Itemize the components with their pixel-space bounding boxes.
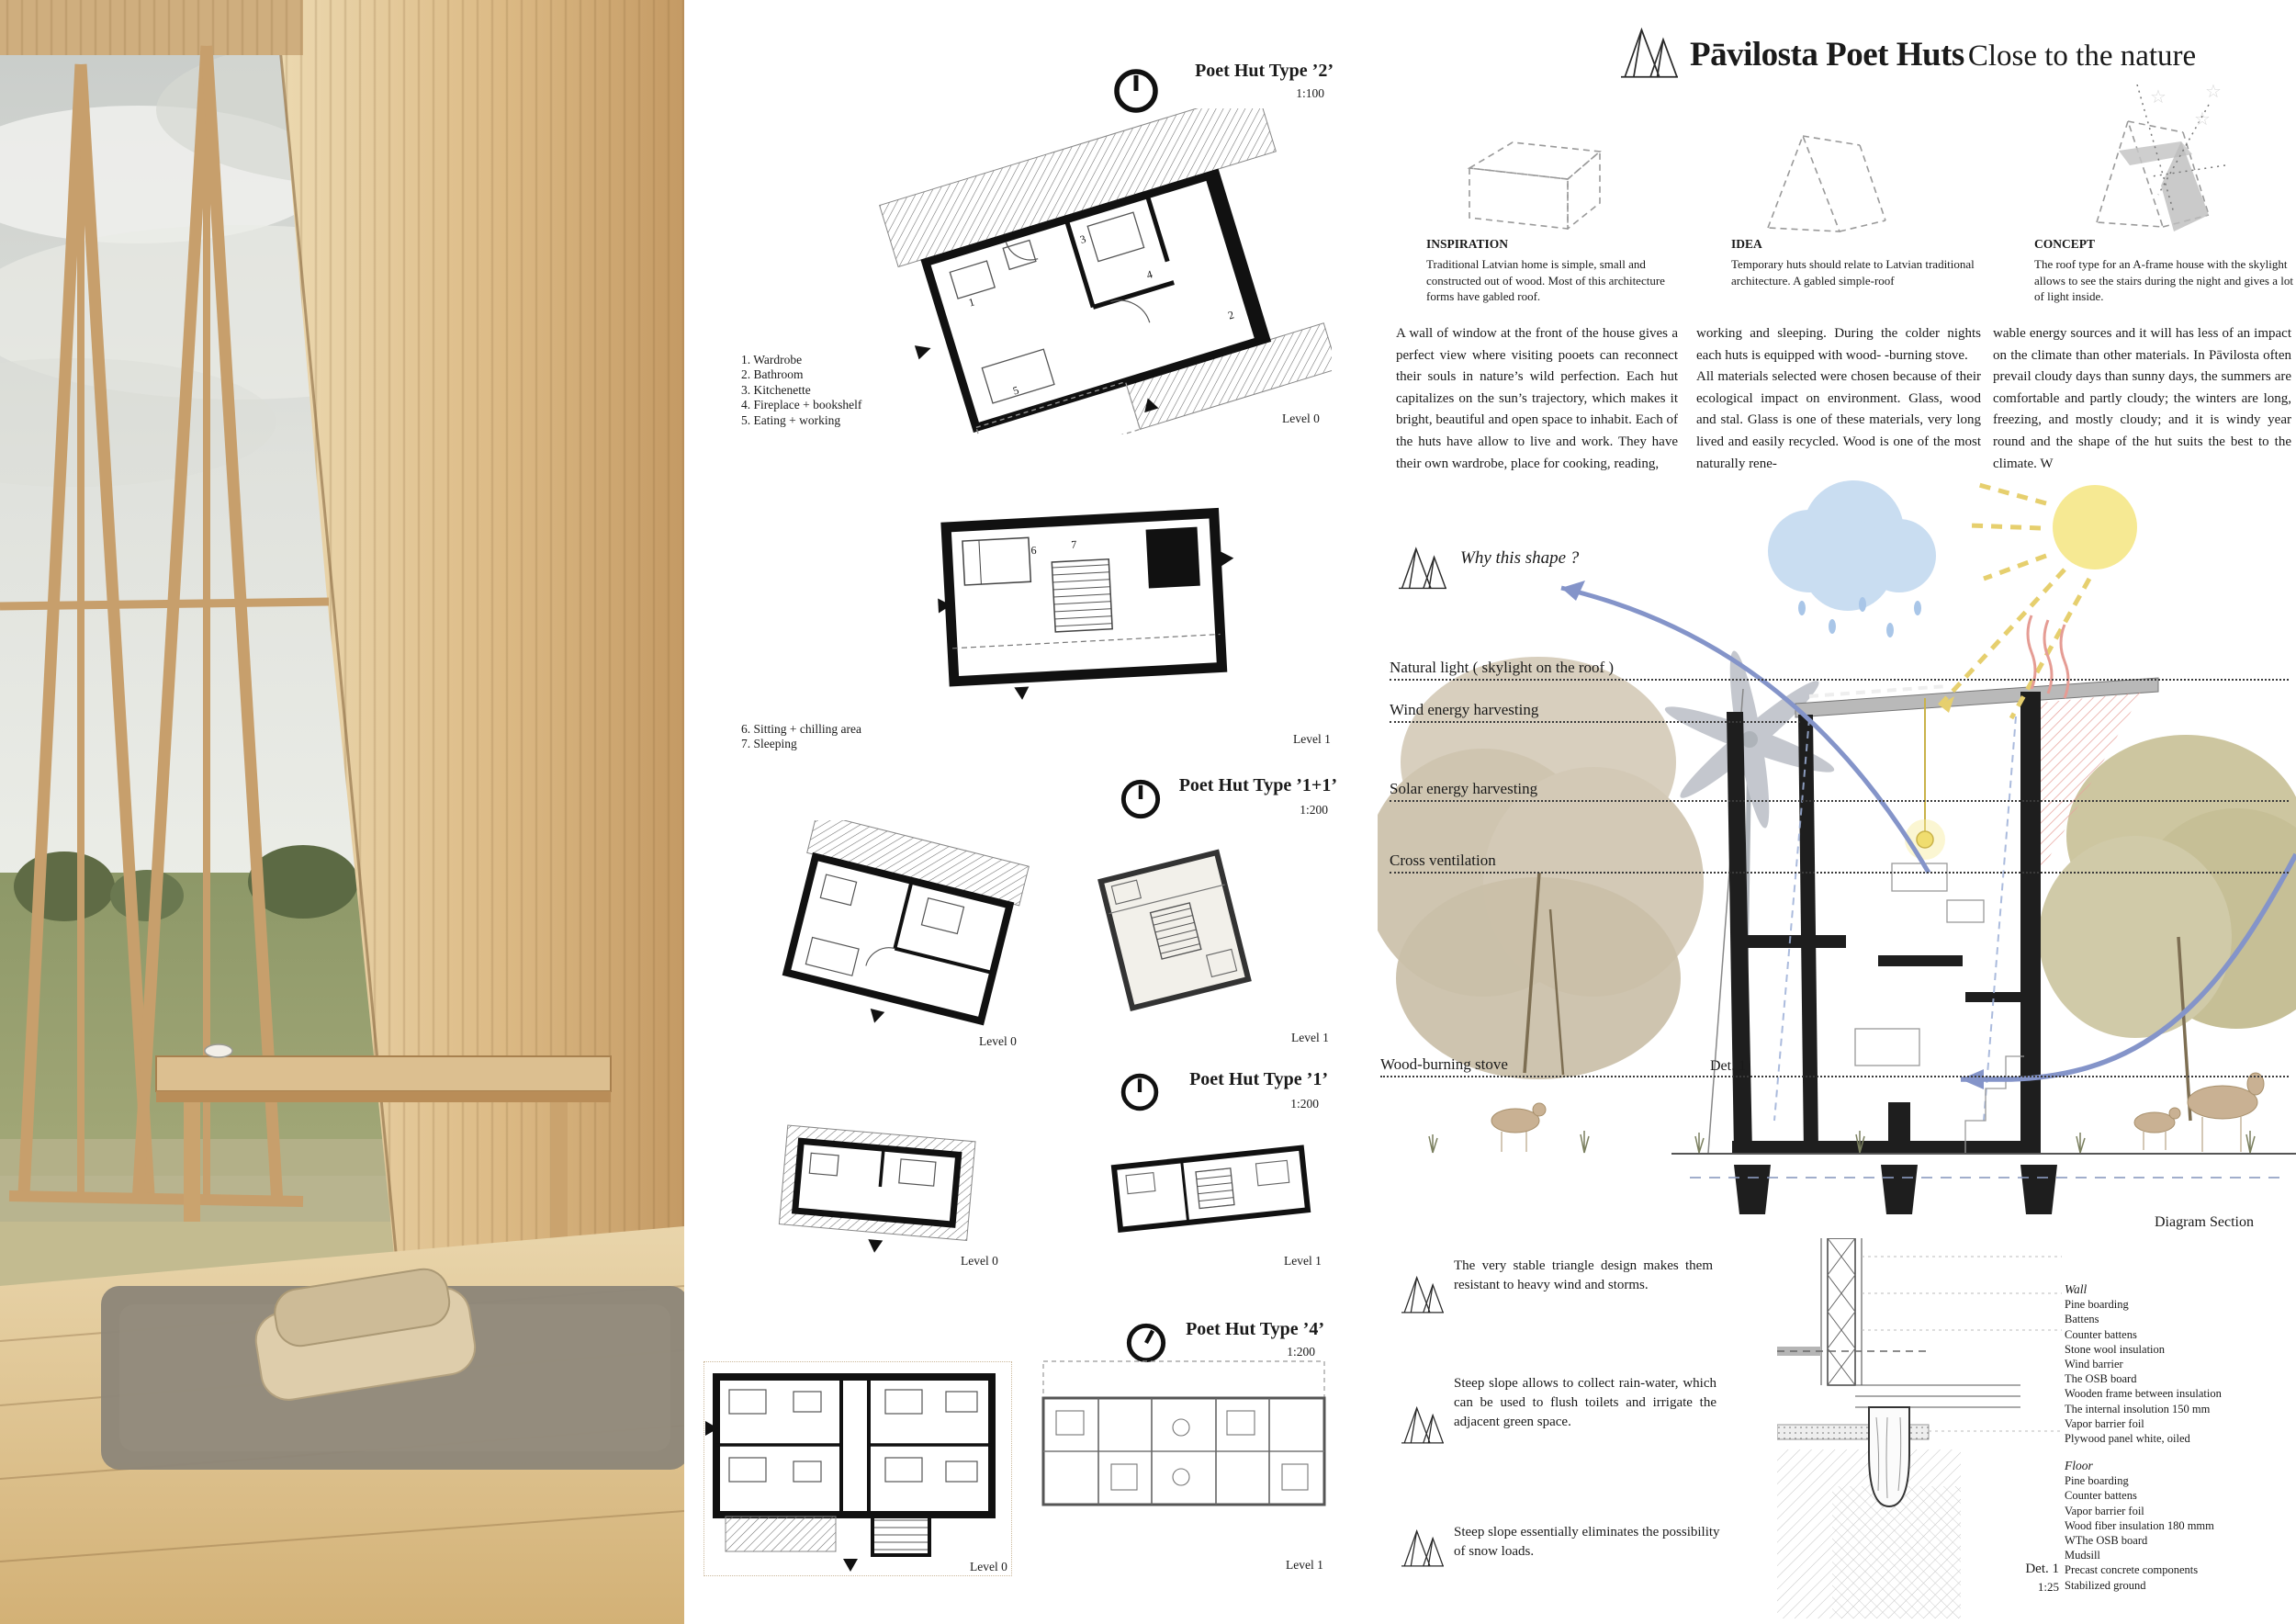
plan-scale-type11: 1:200 (1130, 803, 1328, 818)
legend-level0: 1. Wardrobe 2. Bathroom 3. Kitchenette 4… (741, 353, 934, 428)
plan-scale-type2: 1:100 (1120, 86, 1324, 101)
concept-text: The roof type for an A-frame house with … (2034, 256, 2293, 305)
diagram-question: Why this shape ? (1460, 548, 1579, 569)
floor-materials-list: Floor Pine boarding Counter battens Vapo… (2065, 1459, 2294, 1593)
leader-line (1390, 721, 1800, 723)
presentation-board: Poet Hut Type ’2’ 1:100 3 1 4 5 2 (0, 0, 2296, 1624)
label-wind-energy: Wind energy harvesting (1390, 701, 1538, 719)
a-frame-logo (1619, 24, 1680, 81)
gabled-house-sketch (1456, 124, 1607, 230)
concept-concept: CONCEPT The roof type for an A-frame hou… (2034, 237, 2293, 305)
floorplan-type4-level1 (1034, 1356, 1337, 1539)
diagram-section-drawing (1378, 478, 2296, 1249)
svg-text:☆: ☆ (2194, 109, 2211, 130)
level-label: Level 0 (979, 1034, 1017, 1049)
stove (1888, 1102, 1910, 1141)
level-label: Level 1 (1284, 1254, 1322, 1269)
label-wood-stove: Wood-burning stove (1380, 1055, 1508, 1074)
plan-scale-type1: 1:200 (1130, 1097, 1319, 1111)
leader-line (1380, 1076, 2289, 1077)
level-label: Level 0 (970, 1560, 1007, 1574)
concrete-pile (1869, 1407, 1909, 1506)
a-frame-icon (1398, 1527, 1447, 1569)
plan-title-type1: Poet Hut Type ’1’ (1130, 1069, 1328, 1090)
page-title: Pāvilosta Poet Huts Close to the nature (1690, 35, 2296, 74)
legend-level1: 6. Sitting + chilling area 7. Sleeping (741, 722, 943, 752)
floorplan-type2-level0: 3 1 4 5 2 (872, 108, 1332, 434)
floorplan-type1-level0 (770, 1122, 990, 1258)
interior-furniture (1855, 863, 2024, 1153)
label-cross-ventilation: Cross ventilation (1390, 851, 1496, 870)
room-number: 6 (1030, 544, 1037, 557)
a-frame-icon (1398, 1404, 1447, 1446)
leader-line (1390, 800, 2289, 802)
leader-line (1390, 872, 2289, 874)
a-frame-icon (1396, 544, 1449, 592)
star-icon: ☆☆☆ (2150, 85, 2222, 130)
concept-heading: CONCEPT (2034, 237, 2293, 252)
body-column-1: A wall of window at the front of the hou… (1396, 323, 1678, 475)
rain-cloud (1768, 480, 1936, 637)
concept-idea: IDEA Temporary huts should relate to Lat… (1731, 237, 1990, 288)
detail-marker-diagram: Det. 1 (1710, 1058, 1746, 1075)
concept-heading: IDEA (1731, 237, 1990, 252)
pendant-light (1905, 698, 1945, 860)
a-frame-icon (1398, 1273, 1447, 1315)
body-column-3: wable energy sources and it will has les… (1993, 323, 2291, 475)
coffee-cup (205, 1044, 232, 1057)
room-number: 7 (1071, 538, 1077, 551)
wall-materials-list: Wall Pine boarding Battens Counter batte… (2065, 1282, 2294, 1446)
body-column-2: working and sleeping. During the colder … (1696, 323, 1981, 475)
animal-sketches (1491, 1073, 2264, 1152)
feature-note: Steep slope essentially eliminates the p… (1454, 1523, 1729, 1562)
concept-heading: INSPIRATION (1426, 237, 1685, 252)
feature-note: Steep slope allows to collect rain-water… (1454, 1374, 1716, 1432)
level-label: Level 1 (1286, 1558, 1323, 1573)
floor-heading: Floor (2065, 1459, 2294, 1473)
ground (1429, 1073, 2296, 1214)
floorplan-type4-level0 (705, 1362, 1008, 1572)
title-main: Pāvilosta Poet Huts (1690, 36, 1964, 73)
floorplan-type11-level1 (1091, 843, 1256, 1018)
plan-title-type11: Poet Hut Type ’1+1’ (1130, 775, 1337, 796)
diagram-caption: Diagram Section (2155, 1214, 2254, 1231)
floorplan-type2-level1: 6 7 (937, 503, 1240, 715)
hut-interior-photo (0, 0, 684, 1624)
title-subtitle: Close to the nature (1968, 39, 2196, 73)
plan-title-type4: Poet Hut Type ’4’ (1130, 1319, 1324, 1340)
level-label: Level 0 (1282, 412, 1320, 426)
label-solar-energy: Solar energy harvesting (1390, 780, 1537, 798)
floorplan-type11-level0 (760, 820, 1036, 1050)
concept-text: Temporary huts should relate to Latvian … (1731, 256, 1990, 288)
concept-inspiration: INSPIRATION Traditional Latvian home is … (1426, 237, 1685, 305)
detail-marker: Det. 1 (1975, 1562, 2059, 1577)
feature-note: The very stable triangle design makes th… (1454, 1257, 1713, 1295)
level-label: Level 1 (1291, 1031, 1329, 1045)
concept-text: Traditional Latvian home is simple, smal… (1426, 256, 1685, 305)
leader-line (1390, 679, 2289, 681)
svg-text:☆: ☆ (2150, 87, 2167, 107)
level-label: Level 1 (1293, 732, 1331, 747)
wall-assembly (1777, 1238, 1929, 1385)
skylight-concept-sketch: ☆☆☆ (2071, 85, 2227, 236)
svg-text:☆: ☆ (2205, 85, 2222, 102)
a-frame-sketch (1750, 119, 1887, 234)
detail-scale: 1:25 (1975, 1580, 2059, 1595)
label-natural-light: Natural light ( skylight on the roof ) (1390, 659, 1614, 677)
level-label: Level 0 (961, 1254, 998, 1269)
plan-title-type2: Poet Hut Type ’2’ (1120, 61, 1334, 82)
floorplan-type1-level1 (1102, 1137, 1322, 1240)
wall-heading: Wall (2065, 1282, 2294, 1297)
